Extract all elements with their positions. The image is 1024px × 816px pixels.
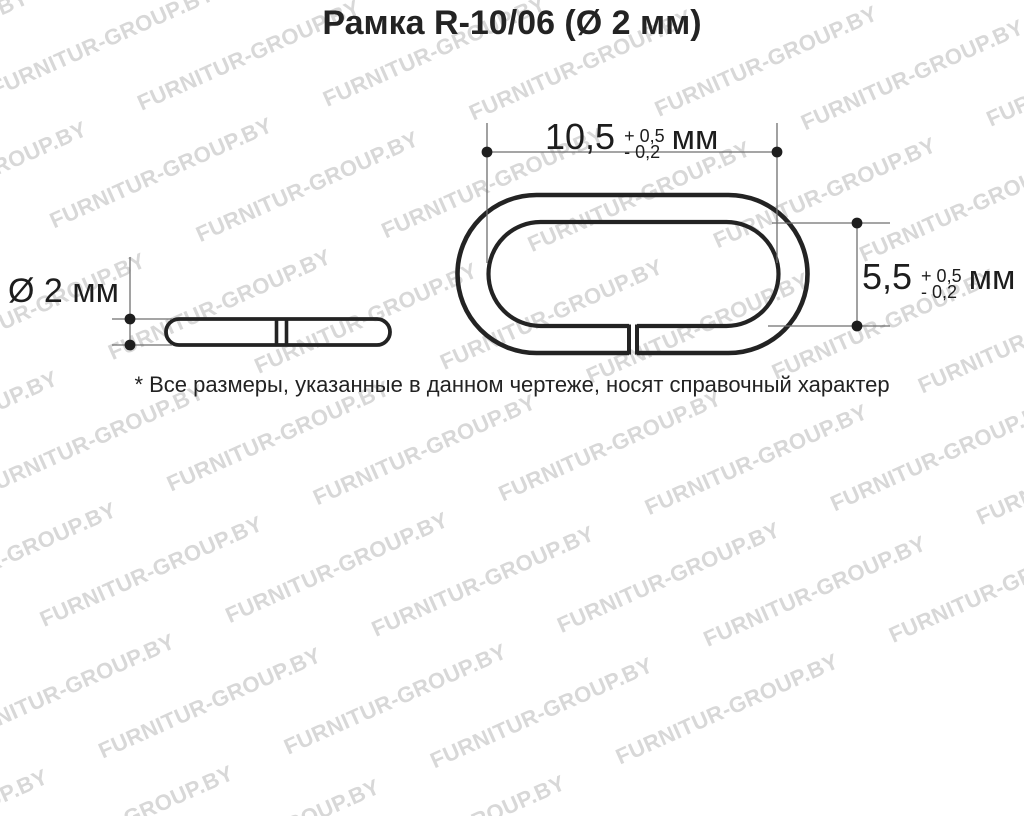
watermark-text: FURNITUR-GROUP.BY bbox=[368, 521, 598, 642]
dia-dim-dot-top bbox=[125, 314, 136, 325]
ring-inner-contour bbox=[489, 222, 779, 326]
page-title: Рамка R-10/06 (Ø 2 мм) bbox=[0, 4, 1024, 43]
watermark-text: FURNITUR-GROUP.BY bbox=[7, 760, 237, 816]
watermark-text: FURNITUR-GROUP.BY bbox=[700, 531, 930, 652]
width-tolerance-minus: - 0,2 bbox=[624, 144, 665, 160]
ring-outer-contour bbox=[458, 195, 808, 353]
watermark-text: FURNITUR-GROUP.BY bbox=[0, 764, 52, 816]
watermark-text: FURNITUR-GROUP.BY bbox=[0, 497, 120, 618]
height-unit: мм bbox=[969, 259, 1016, 297]
width-dim-dot-left bbox=[482, 147, 493, 158]
watermark-text: FURNITUR-GROUP.BY bbox=[641, 399, 871, 520]
wire-diameter-label: Ø 2 мм bbox=[8, 274, 119, 308]
width-dimension-label: 10,5+ 0,5- 0,2мм bbox=[545, 119, 718, 160]
watermark-text: FURNITUR-GROUP.BY bbox=[280, 639, 510, 760]
technical-drawing-page: { "title": "Рамка R-10/06 (Ø 2 мм)", "no… bbox=[0, 0, 1024, 408]
height-tolerance: + 0,5- 0,2 bbox=[921, 268, 962, 300]
watermark-text: FURNITUR-GROUP.BY bbox=[153, 774, 383, 816]
drawing-canvas bbox=[0, 0, 1024, 408]
width-unit: мм bbox=[672, 119, 719, 157]
watermark-text: FURNITUR-GROUP.BY bbox=[612, 648, 842, 769]
watermark-text: FURNITUR-GROUP.BY bbox=[973, 409, 1024, 530]
watermark-text: FURNITUR-GROUP.BY bbox=[426, 652, 656, 773]
width-dim-dot-right bbox=[772, 147, 783, 158]
watermark-text: FURNITUR-GROUP.BY bbox=[222, 507, 452, 628]
height-tolerance-minus: - 0,2 bbox=[921, 284, 962, 300]
width-tolerance: + 0,5- 0,2 bbox=[624, 128, 665, 160]
height-dim-dot-bottom bbox=[852, 321, 863, 332]
height-dimension-label: 5,5+ 0,5- 0,2мм bbox=[862, 259, 1015, 300]
watermark-text: FURNITUR-GROUP.BY bbox=[339, 770, 569, 816]
height-dim-dot-top bbox=[852, 218, 863, 229]
watermark-text: FURNITUR-GROUP.BY bbox=[95, 642, 325, 763]
width-value: 10,5 bbox=[545, 116, 615, 157]
footnote: * Все размеры, указанные в данном чертеж… bbox=[0, 372, 1024, 398]
watermark-text: FURNITUR-GROUP.BY bbox=[36, 511, 266, 632]
watermark-text: FURNITUR-GROUP.BY bbox=[0, 629, 179, 750]
watermark-text: FURNITUR-GROUP.BY bbox=[827, 395, 1024, 516]
height-value: 5,5 bbox=[862, 256, 912, 297]
watermark-text: FURNITUR-GROUP.BY bbox=[553, 517, 783, 638]
dia-dim-dot-bottom bbox=[125, 340, 136, 351]
watermark-text: FURNITUR-GROUP.BY bbox=[885, 527, 1024, 648]
